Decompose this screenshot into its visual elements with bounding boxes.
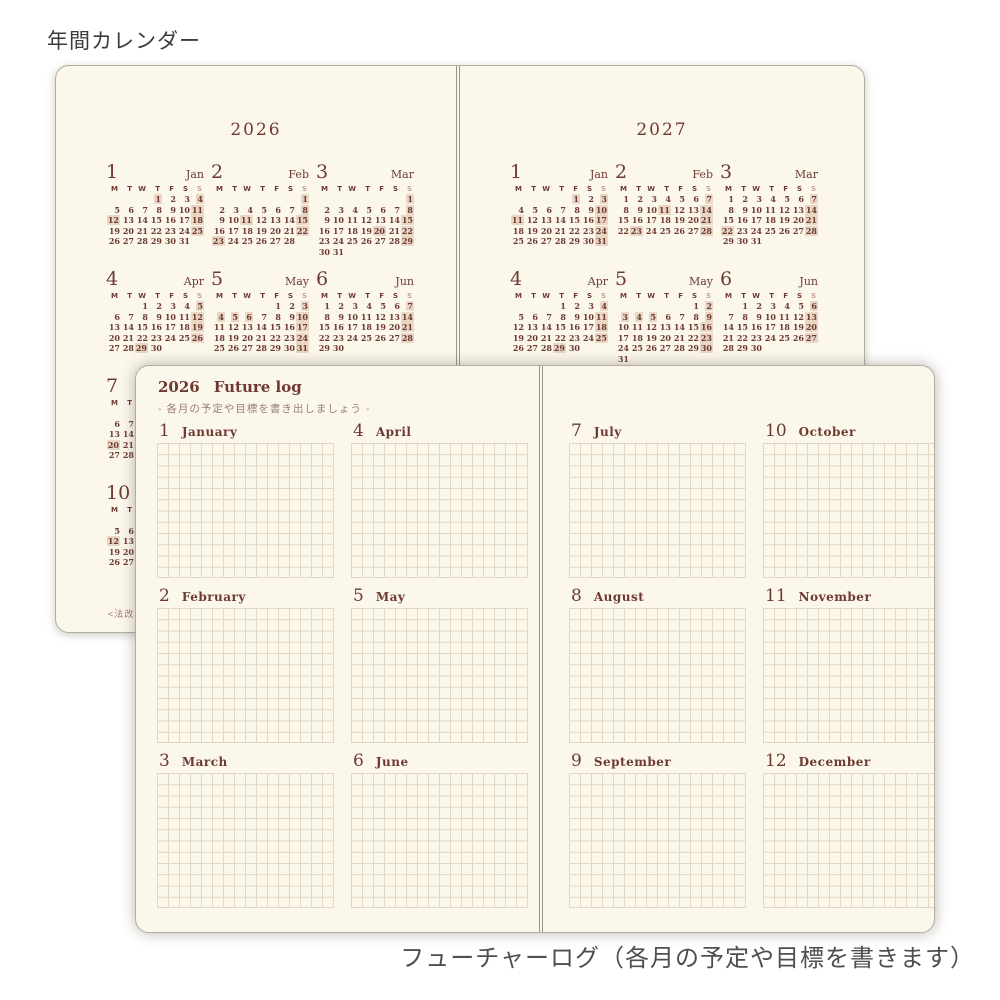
date-number: 28 — [723, 343, 734, 353]
date-number: 4 — [635, 312, 643, 322]
weekday-label: W — [344, 185, 358, 193]
date-cell: 4 — [211, 312, 225, 323]
date-cell: 14 — [538, 322, 552, 333]
date-number: 26 — [109, 557, 120, 567]
month-block-2: 2FebMTWTFSS12345678910111213141516171819… — [615, 164, 720, 271]
date-cell: 19 — [643, 333, 657, 344]
future-log-month-2: 2February — [157, 586, 333, 751]
date-cell: 16 — [281, 322, 295, 333]
date-number: 20 — [793, 215, 804, 225]
grid-paper — [351, 773, 528, 908]
date-number: 22 — [618, 226, 629, 236]
date-number: 21 — [284, 226, 295, 236]
date-cell: 22 — [134, 333, 148, 344]
date-number: 17 — [347, 322, 358, 332]
date-cell: 30 — [148, 343, 162, 354]
date-number: 18 — [191, 215, 204, 225]
date-cell: 24 — [225, 236, 239, 247]
date-cell: 9 — [629, 205, 643, 216]
weekday-label: T — [253, 185, 267, 193]
date-number: 7 — [406, 301, 414, 311]
week-row: 262728293031 — [106, 236, 211, 247]
weekday-label: S — [190, 185, 204, 193]
date-number: 13 — [375, 215, 386, 225]
date-cell: 28 — [134, 236, 148, 247]
date-number: 25 — [513, 236, 524, 246]
date-number: 19 — [109, 226, 120, 236]
date-cell: 26 — [524, 236, 538, 247]
date-cell: 13 — [524, 322, 538, 333]
date-number: 23 — [737, 226, 748, 236]
date-cell — [594, 343, 608, 354]
date-cell: 15 — [685, 322, 699, 333]
date-number: 21 — [389, 226, 400, 236]
date-number: 13 — [793, 205, 804, 215]
month-name: Jan — [186, 168, 204, 181]
date-cell: 30 — [580, 236, 594, 247]
weekday-label: M — [510, 292, 524, 300]
date-number: 16 — [700, 322, 713, 332]
date-cell: 19 — [372, 322, 386, 333]
date-cell — [225, 194, 239, 205]
weekday-label: S — [176, 185, 190, 193]
weekday-label: S — [790, 292, 804, 300]
month-number: 3 — [720, 164, 732, 181]
weekday-label: T — [762, 292, 776, 300]
date-number: 22 — [151, 226, 162, 236]
date-cell: 28 — [720, 343, 734, 354]
month-header: 6Jun — [316, 271, 414, 288]
week-row: 13141516171819 — [106, 322, 211, 333]
date-cell: 6 — [790, 194, 804, 205]
date-number: 30 — [700, 343, 713, 353]
date-cell: 20 — [685, 215, 699, 226]
grid-paper — [157, 773, 334, 908]
date-cell: 21 — [386, 226, 400, 237]
date-number: 16 — [632, 215, 643, 225]
date-cell: 16 — [316, 226, 330, 237]
weekday-label: S — [594, 185, 608, 193]
date-cell: 7 — [552, 205, 566, 216]
date-cell: 11 — [239, 215, 253, 226]
date-cell: 4 — [358, 301, 372, 312]
date-cell: 14 — [120, 322, 134, 333]
date-cell: 30 — [316, 247, 330, 258]
date-cell: 6 — [239, 312, 253, 323]
date-cell: 29 — [720, 236, 734, 247]
week-row: 18192021222324 — [510, 226, 615, 237]
future-month-number: 12 — [765, 751, 787, 771]
date-cell: 26 — [106, 236, 120, 247]
date-cell: 26 — [790, 333, 804, 344]
date-cell: 21 — [671, 333, 685, 344]
date-cell — [106, 408, 120, 419]
grid-paper — [763, 443, 935, 578]
date-number: 26 — [674, 226, 685, 236]
date-number: 15 — [401, 215, 414, 225]
weekday-label: T — [253, 292, 267, 300]
date-cell: 24 — [330, 236, 344, 247]
date-cell: 13 — [267, 215, 281, 226]
date-cell — [211, 301, 225, 312]
grid-paper — [157, 608, 334, 743]
date-cell: 22 — [720, 226, 734, 237]
weekday-label: T — [524, 185, 538, 193]
date-cell: 1 — [734, 301, 748, 312]
date-number: 17 — [595, 215, 608, 225]
date-number: 22 — [137, 333, 148, 343]
weekday-label: S — [804, 292, 818, 300]
date-number: 31 — [595, 236, 608, 246]
date-cell — [524, 301, 538, 312]
month-name: Jun — [395, 275, 414, 288]
date-number: 11 — [765, 205, 776, 215]
grid-paper — [569, 773, 746, 908]
grid-paper — [569, 608, 746, 743]
date-number: 23 — [319, 236, 330, 246]
date-cell: 25 — [629, 343, 643, 354]
date-cell: 12 — [225, 322, 239, 333]
date-cell: 20 — [120, 547, 134, 558]
date-cell: 8 — [134, 312, 148, 323]
month-name: May — [689, 275, 713, 288]
date-cell: 21 — [253, 333, 267, 344]
date-number: 31 — [333, 247, 344, 257]
date-cell: 11 — [629, 322, 643, 333]
date-number: 11 — [595, 312, 608, 322]
date-number: 25 — [242, 236, 253, 246]
date-cell: 31 — [748, 236, 762, 247]
date-cell: 16 — [148, 322, 162, 333]
date-number: 25 — [595, 333, 608, 343]
date-cell: 3 — [176, 194, 190, 205]
date-cell: 6 — [524, 312, 538, 323]
month-header: 5May — [615, 271, 713, 288]
date-cell: 2 — [162, 194, 176, 205]
future-month-header: 7July — [569, 421, 745, 443]
date-cell: 4 — [776, 301, 790, 312]
date-cell — [190, 343, 204, 354]
date-number: 17 — [296, 322, 309, 332]
date-number: 12 — [527, 215, 538, 225]
date-number: 24 — [333, 236, 344, 246]
date-cell: 18 — [211, 333, 225, 344]
future-month-number: 8 — [571, 586, 582, 606]
date-cell — [671, 354, 685, 365]
date-cell: 16 — [211, 226, 225, 237]
date-number: 24 — [646, 226, 657, 236]
weekday-label: M — [211, 185, 225, 193]
date-cell — [386, 343, 400, 354]
future-month-header: 6June — [351, 751, 527, 773]
date-cell: 21 — [552, 226, 566, 237]
date-cell: 22 — [267, 333, 281, 344]
week-row: 891011121314 — [720, 205, 825, 216]
date-number: 28 — [555, 236, 566, 246]
date-cell: 25 — [510, 236, 524, 247]
weekday-label: F — [776, 185, 790, 193]
date-cell — [120, 194, 134, 205]
date-number: 11 — [511, 215, 524, 225]
date-number: 19 — [527, 226, 538, 236]
date-cell: 8 — [552, 312, 566, 323]
date-cell: 21 — [120, 440, 134, 451]
date-number: 29 — [553, 343, 566, 353]
date-cell: 23 — [629, 226, 643, 237]
week-row: 293031 — [720, 236, 825, 247]
month-name: Mar — [391, 168, 414, 181]
future-month-number: 6 — [353, 751, 364, 771]
date-cell — [344, 194, 358, 205]
date-number: 30 — [583, 236, 594, 246]
weekday-label: W — [643, 185, 657, 193]
date-cell: 14 — [720, 322, 734, 333]
month-block-6: 6JunMTWTFSS12345678910111213141516171819… — [316, 271, 421, 378]
weekday-label: F — [671, 292, 685, 300]
date-cell: 28 — [699, 226, 713, 237]
weekday-label: S — [386, 185, 400, 193]
date-number: 11 — [658, 205, 671, 215]
date-cell: 19 — [776, 215, 790, 226]
date-cell: 10 — [580, 312, 594, 323]
date-cell: 13 — [386, 312, 400, 323]
month-block-3: 3MarMTWTFSS12345678910111213141516171819… — [316, 164, 421, 271]
date-number: 4 — [196, 194, 204, 204]
week-row: 12131415161718 — [106, 215, 211, 226]
date-cell: 22 — [615, 226, 629, 237]
date-number: 23 — [212, 236, 225, 246]
date-number: 4 — [217, 312, 225, 322]
date-cell: 31 — [330, 247, 344, 258]
date-cell: 28 — [804, 226, 818, 237]
date-cell: 17 — [615, 333, 629, 344]
date-number: 18 — [513, 226, 524, 236]
date-cell: 22 — [295, 226, 309, 237]
weekday-label: F — [162, 292, 176, 300]
month-name: May — [285, 275, 309, 288]
week-row: 232425262728 — [211, 236, 316, 247]
week-row: 11121314151617 — [510, 215, 615, 226]
date-number: 6 — [810, 301, 818, 311]
date-number: 30 — [737, 236, 748, 246]
date-cell: 10 — [295, 312, 309, 323]
date-cell: 25 — [176, 333, 190, 344]
date-number: 20 — [389, 322, 400, 332]
future-log-month-1: 1January — [157, 421, 333, 586]
week-row: 22232425262728 — [720, 226, 825, 237]
weekday-header: MTWTFSS — [510, 290, 615, 301]
weekday-header: MTWTFSS — [211, 183, 316, 194]
date-number: 27 — [375, 236, 386, 246]
date-cell: 27 — [804, 333, 818, 344]
weekday-label: T — [120, 399, 134, 407]
date-cell: 2 — [629, 194, 643, 205]
date-cell: 19 — [253, 226, 267, 237]
date-cell: 25 — [358, 333, 372, 344]
date-cell — [400, 247, 414, 258]
weekday-label: T — [330, 185, 344, 193]
date-number: 28 — [256, 343, 267, 353]
weekday-label: S — [594, 292, 608, 300]
date-number: 26 — [793, 333, 804, 343]
date-number: 16 — [151, 322, 162, 332]
date-cell: 26 — [106, 557, 120, 568]
date-cell: 30 — [734, 236, 748, 247]
weekday-label: S — [176, 292, 190, 300]
date-number: 21 — [674, 333, 685, 343]
date-cell — [162, 343, 176, 354]
date-number: 16 — [751, 322, 762, 332]
month-number: 3 — [316, 164, 328, 181]
month-name: Jun — [799, 275, 818, 288]
week-row: 282930 — [720, 343, 825, 354]
date-cell: 23 — [748, 333, 762, 344]
date-cell: 20 — [120, 226, 134, 237]
date-cell: 29 — [400, 236, 414, 247]
week-row: 2345678 — [211, 205, 316, 216]
date-number: 26 — [361, 236, 372, 246]
future-log-month-4: 4April — [351, 421, 527, 586]
date-cell: 9 — [316, 215, 330, 226]
month-name: Mar — [795, 168, 818, 181]
weekday-label: T — [120, 185, 134, 193]
date-cell: 27 — [685, 226, 699, 237]
date-cell: 14 — [134, 215, 148, 226]
date-cell: 2 — [281, 301, 295, 312]
date-cell: 28 — [386, 236, 400, 247]
month-block-5: 5MayMTWTFSS12345678910111213141516171819… — [615, 271, 720, 378]
date-number: 21 — [805, 215, 818, 225]
date-cell — [386, 194, 400, 205]
weekday-label: M — [720, 292, 734, 300]
date-number: 15 — [688, 322, 699, 332]
date-number: 22 — [555, 333, 566, 343]
weekday-header: MTWTFSS — [720, 290, 825, 301]
date-number: 16 — [284, 322, 295, 332]
date-number: 12 — [191, 312, 204, 322]
future-log-month-10: 10October — [763, 421, 935, 586]
future-month-number: 1 — [159, 421, 170, 441]
date-cell: 20 — [372, 226, 386, 237]
date-cell: 25 — [776, 333, 790, 344]
weekday-label: T — [657, 185, 671, 193]
date-cell: 8 — [615, 205, 629, 216]
weekday-label: F — [267, 185, 281, 193]
date-cell — [671, 301, 685, 312]
date-cell: 12 — [372, 312, 386, 323]
date-cell: 15 — [316, 322, 330, 333]
date-cell: 7 — [720, 312, 734, 323]
weekday-label: T — [552, 185, 566, 193]
date-cell: 8 — [566, 205, 580, 216]
future-month-name: August — [594, 590, 644, 604]
future-log-subtitle: - 各月の予定や目標を書き出しましょう - — [158, 401, 539, 416]
date-cell: 25 — [239, 236, 253, 247]
weekday-header: MTWTFSS — [316, 290, 421, 301]
date-cell: 25 — [211, 343, 225, 354]
date-number: 11 — [632, 322, 643, 332]
date-cell: 6 — [386, 301, 400, 312]
date-number: 20 — [242, 333, 253, 343]
month-block-2: 2FebMTWTFSS12345678910111213141516171819… — [211, 164, 316, 271]
date-number: 3 — [301, 301, 309, 311]
date-cell: 5 — [776, 194, 790, 205]
date-number: 30 — [569, 343, 580, 353]
weekday-header: MTWTFSS — [615, 183, 720, 194]
date-cell: 4 — [594, 301, 608, 312]
date-number: 17 — [228, 226, 239, 236]
future-log-month-11: 11November — [763, 586, 935, 751]
date-cell: 25 — [762, 226, 776, 237]
future-month-name: April — [376, 425, 412, 439]
date-number: 28 — [389, 236, 400, 246]
date-cell: 11 — [776, 312, 790, 323]
date-cell: 16 — [748, 322, 762, 333]
future-month-number: 7 — [571, 421, 582, 441]
date-cell: 12 — [643, 322, 657, 333]
weekday-label: M — [106, 292, 120, 300]
date-cell: 17 — [344, 322, 358, 333]
date-number: 26 — [256, 236, 267, 246]
date-cell: 4 — [762, 194, 776, 205]
date-number: 15 — [723, 215, 734, 225]
date-cell: 18 — [594, 322, 608, 333]
week-row: 31 — [615, 354, 720, 365]
date-cell: 22 — [316, 333, 330, 344]
date-cell: 8 — [267, 312, 281, 323]
date-cell: 20 — [790, 215, 804, 226]
date-number: 28 — [123, 450, 134, 460]
date-cell: 5 — [510, 312, 524, 323]
date-number: 30 — [284, 343, 295, 353]
week-row: 123 — [211, 301, 316, 312]
date-number: 17 — [618, 333, 629, 343]
date-cell: 21 — [720, 333, 734, 344]
date-cell: 10 — [330, 215, 344, 226]
date-cell: 15 — [148, 215, 162, 226]
date-number: 27 — [527, 343, 538, 353]
date-cell: 16 — [566, 322, 580, 333]
future-log-month-5: 5May — [351, 586, 527, 751]
weekday-label: S — [295, 185, 309, 193]
date-number: 10 — [165, 312, 176, 322]
weekday-header: MTWTFSS — [615, 290, 720, 301]
date-number: 17 — [583, 322, 594, 332]
date-number: 21 — [123, 333, 134, 343]
date-cell: 30 — [699, 343, 713, 354]
date-cell: 3 — [580, 301, 594, 312]
date-cell: 14 — [400, 312, 414, 323]
month-name: Jan — [590, 168, 608, 181]
date-cell: 5 — [790, 301, 804, 312]
date-cell: 5 — [106, 205, 120, 216]
date-cell: 22 — [566, 226, 580, 237]
date-number: 23 — [751, 333, 762, 343]
week-row: 9101112131415 — [211, 215, 316, 226]
date-number: 24 — [296, 333, 309, 343]
future-log-spread: 2026Future log - 各月の予定や目標を書き出しましょう - 1Ja… — [135, 365, 935, 933]
date-number: 26 — [779, 226, 790, 236]
date-cell: 28 — [552, 236, 566, 247]
date-cell: 4 — [629, 312, 643, 323]
date-cell: 2 — [734, 194, 748, 205]
date-number: 27 — [541, 236, 552, 246]
date-number: 29 — [151, 236, 162, 246]
date-number: 27 — [109, 450, 120, 460]
month-header: 2Feb — [211, 164, 309, 181]
week-row: 1234 — [106, 194, 211, 205]
date-number: 15 — [737, 322, 748, 332]
